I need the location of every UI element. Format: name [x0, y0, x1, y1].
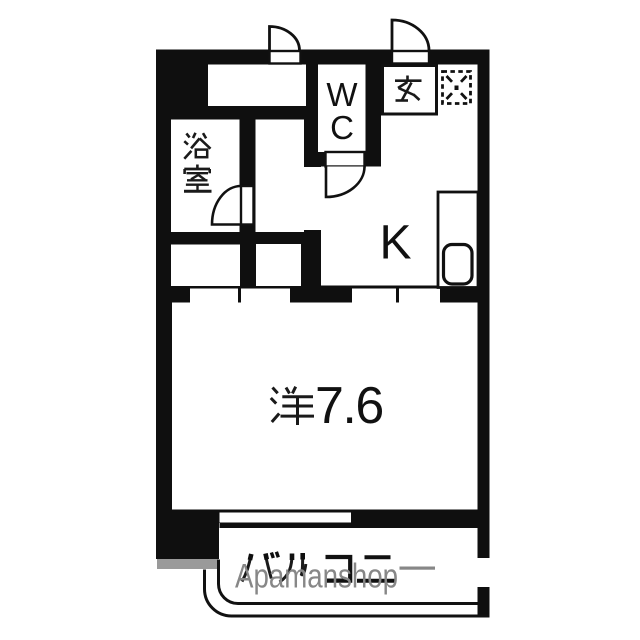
svg-text:C: C: [330, 109, 354, 146]
svg-text:W: W: [326, 76, 358, 113]
svg-text:7.6: 7.6: [315, 377, 383, 435]
svg-text:Apamanshop: Apamanshop: [235, 558, 398, 596]
svg-text:K: K: [379, 217, 411, 270]
